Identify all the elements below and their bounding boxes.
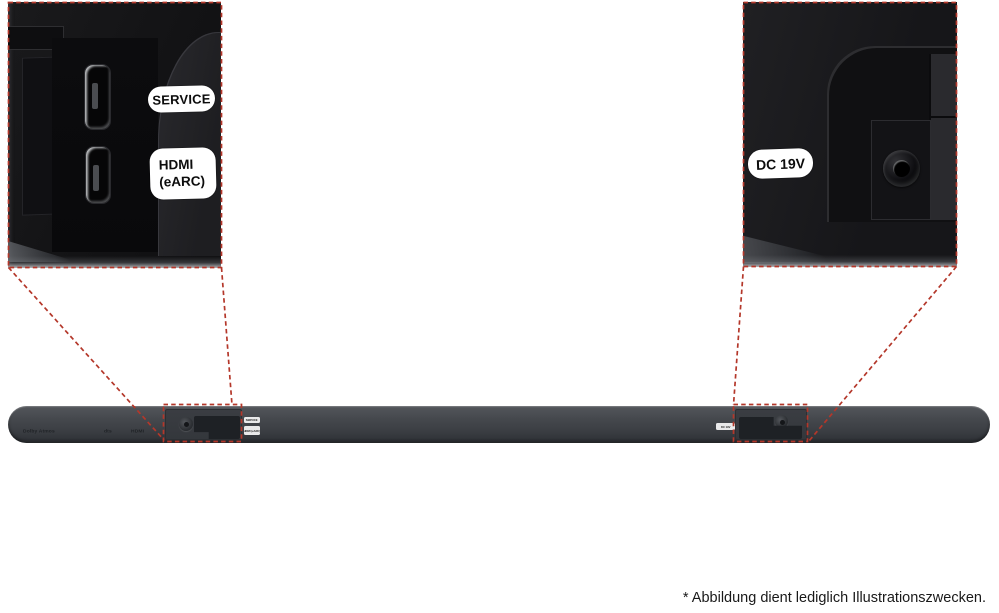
dc-label-text: DC 19V	[756, 155, 806, 173]
screw-icon	[179, 417, 193, 431]
port-contact	[92, 83, 98, 109]
port-recess	[739, 417, 802, 439]
mini-hdmi-earc-label: HDMI (eARC)	[244, 426, 260, 435]
recess-wall	[158, 32, 221, 256]
service-label: SERVICE	[148, 85, 216, 113]
mini-dc-text: DC 19V	[721, 425, 730, 428]
bottom-edge-highlight	[8, 256, 221, 268]
callout-left-ports-photo: SERVICE HDMI (eARC)	[8, 2, 221, 268]
right-connector-a	[734, 267, 744, 406]
bottom-edge-highlight	[743, 255, 957, 267]
recess-channel	[931, 54, 957, 220]
left-connector-b	[222, 268, 233, 406]
mini-dc-label: DC 19V	[716, 423, 735, 430]
soundbar: Dolby Atmos dts HDMI SERVICE HDMI (eARC)…	[8, 406, 990, 443]
soundbar-right-port-recess	[735, 409, 807, 440]
dts-logo: dts	[104, 428, 112, 433]
dolby-atmos-logo: Dolby Atmos	[23, 428, 55, 433]
disclaimer-text: * Abbildung dient lediglich Illustration…	[683, 590, 986, 606]
hdmi-label-line1: HDMI	[159, 156, 194, 174]
product-illustration: SERVICE HDMI (eARC) DC 19V Dolby Atmos d…	[0, 0, 999, 613]
service-label-text: SERVICE	[152, 91, 211, 108]
panel-seam-horizontal	[929, 116, 957, 118]
mini-service-text: SERVICE	[246, 419, 258, 422]
mini-service-label: SERVICE	[244, 417, 260, 423]
hdmi-earc-port-icon	[85, 146, 111, 204]
service-port-icon	[84, 64, 111, 130]
dc-19v-label: DC 19V	[748, 148, 814, 179]
soundbar-logos: Dolby Atmos dts HDMI	[23, 426, 160, 435]
hdmi-logo: HDMI	[131, 428, 144, 433]
port-contact	[93, 165, 99, 191]
mini-hdmi-text: HDMI (eARC)	[244, 429, 260, 432]
dc-jack-hole	[893, 160, 910, 177]
hdmi-earc-label: HDMI (eARC)	[149, 147, 216, 200]
dc-19v-jack-icon	[883, 150, 920, 187]
port-recess	[194, 416, 240, 439]
hdmi-label-line2: (eARC)	[159, 173, 205, 191]
soundbar-left-port-recess	[165, 409, 242, 440]
callout-right-dc-photo: DC 19V	[743, 2, 957, 267]
